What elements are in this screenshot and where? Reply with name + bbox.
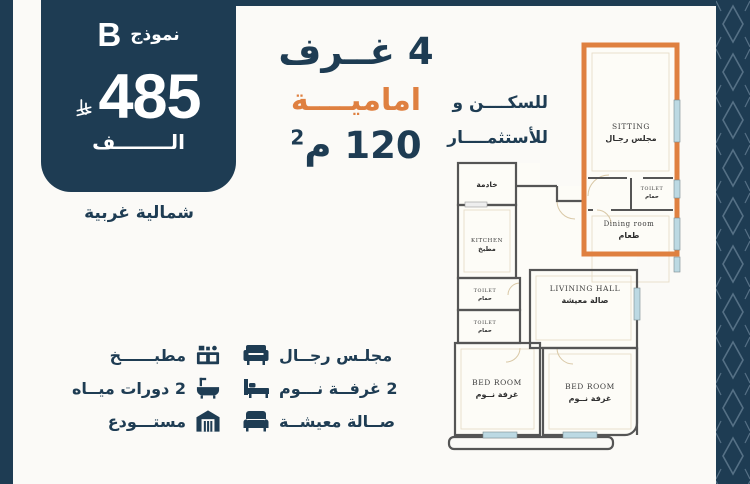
room-label-dining-en: Dining room [604,220,655,228]
couch-icon [243,410,269,432]
legend-item-bedrooms: 2 غرفــة نـــوم [243,377,425,399]
legend-item-storage: مستـــودع [58,410,220,432]
room-label-toilet-a-ar: حمام [645,194,659,200]
room-label-bedroom2-ar: غرفة نــوم [569,394,612,403]
room-label-kitchen-ar: مطبخ [478,245,496,253]
room-label-bedroom1-en: BED ROOM [472,378,522,387]
legend-item-majlis: مجلـس رجــال [243,344,425,366]
legend-item-bathrooms: 2 دورات ميــاه [58,377,220,399]
legend-item-kitchen: مطبــــــخ [58,344,220,366]
legend-item-living: صــالة معيشــة [243,410,425,432]
room-label-toilet-b-en: TOILET [474,288,497,294]
room-label-bedroom2-en: BED ROOM [565,382,615,391]
right-border-pattern [716,0,750,484]
room-label-maid-ar: خادمة [476,180,497,189]
sofa-icon [243,344,269,366]
price-badge: نموذج B 485 الــــــــف [41,0,236,192]
headline: 4 غــرف اماميــــة 120 م2 [272,30,440,167]
legend-right-column: مجلـس رجــال 2 غرفــة نـــوم [243,344,425,443]
legend-left-column: مطبــــــخ 2 دورات ميــاه مستـــودع [58,344,220,443]
room-label-toilet-c-en: TOILET [474,320,497,326]
room-label-dining-ar: طعام [619,231,640,240]
kitchen-icon [196,343,220,367]
area-label: 120 م2 [272,124,440,167]
bed-icon [243,377,269,399]
poster-page: نموذج B 485 الــــــــف شمالية غربية 4 غ… [0,0,750,484]
legend-label: مجلـس رجــال [279,346,392,365]
floor-plan: SITTING مجلس رجـال TOILET حمام Dining ro… [435,38,713,462]
room-label-living-ar: صالة معيشة [561,296,608,305]
bathtub-icon [196,376,220,400]
warehouse-icon [196,409,220,433]
rooms-count: 4 غــرف [272,30,440,73]
room-label-living-en: LIVINING HALL [550,284,621,293]
riyal-icon [76,96,92,128]
room-label-toilet-b-ar: حمام [478,296,492,302]
decor-white-bar [13,0,41,219]
left-border [0,0,13,484]
room-label-toilet-c-ar: حمام [478,328,492,334]
legend-label: مطبــــــخ [110,346,186,365]
model-letter: B [97,16,121,54]
model-label: نموذج [130,25,179,45]
area-superscript: 2 [290,126,304,150]
legend-label: صــالة معيشــة [279,412,395,431]
legend-label: 2 دورات ميــاه [72,379,186,398]
room-label-bedroom1-ar: غرفة نــوم [476,390,519,399]
legend-label: 2 غرفــة نـــوم [279,379,397,398]
orientation-label: شمالية غربية [58,203,220,223]
model-row: نموذج B [41,16,236,54]
price-value: 485 [98,68,200,128]
thousand-label: الــــــــف [41,130,236,154]
room-label-toilet-a-en: TOILET [641,186,664,192]
price-row: 485 [41,68,236,128]
window-mark [465,202,487,207]
front-label: اماميــــة [272,83,440,118]
legend-label: مستـــودع [108,412,186,431]
room-label-kitchen-en: KITCHEN [471,238,503,244]
room-label-sitting-en: SITTING [612,122,650,131]
room-label-sitting-ar: مجلس رجـال [605,134,656,144]
